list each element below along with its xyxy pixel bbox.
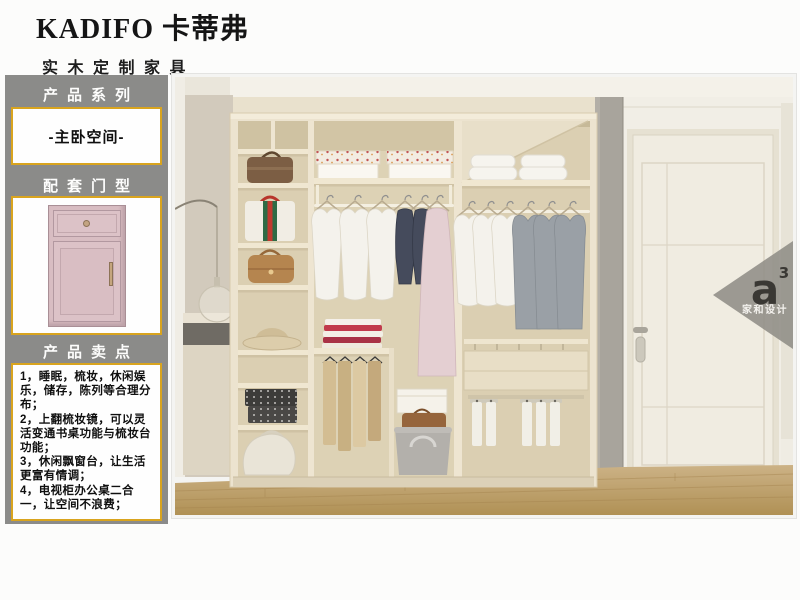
bag-satchel: [248, 251, 294, 284]
door-sample-box: [11, 196, 162, 335]
selling-point-2: 2，上翻梳妆镜，可以灵活变通书桌功能与梳妆台功能；: [20, 413, 155, 456]
section-title-points: 产品卖点: [5, 341, 168, 362]
box-and-basket: [394, 389, 452, 475]
brand-name: KADIFO 卡蒂弗: [36, 7, 249, 47]
watermark-logo-sup: 3: [779, 264, 789, 282]
left-wall: [175, 77, 235, 477]
series-value: -主卧空间-: [49, 126, 125, 147]
bag-brown: [247, 153, 293, 184]
bag-striped: [245, 197, 295, 241]
section-title-series: 产品系列: [5, 84, 168, 105]
room-scene: a 3 家和设计: [175, 77, 793, 515]
selling-points-box: 1，睡眠，梳妆，休闲娱乐，储存，陈列等合理分布； 2，上翻梳妆镜，可以灵活变通书…: [11, 363, 162, 521]
showcase-photo: a 3 家和设计: [172, 74, 796, 518]
selling-point-1: 1，睡眠，梳妆，休闲娱乐，储存，陈列等合理分布；: [20, 370, 155, 413]
wall-pillar: [595, 97, 623, 477]
storage-boxes-dark: [245, 389, 297, 423]
brand-header: KADIFO 卡蒂弗 实木定制家具: [36, 7, 249, 78]
sidebar: 产品系列 -主卧空间- 配套门型 产品卖点 1，睡眠，梳妆，休闲娱乐，储存，陈列…: [5, 75, 168, 524]
page: KADIFO 卡蒂弗 实木定制家具 产品系列 -主卧空间- 配套门型 产品卖点 …: [0, 0, 800, 600]
door-handle: [109, 262, 113, 286]
watermark-caption: 家和设计: [742, 303, 788, 316]
wardrobe: [230, 113, 597, 487]
door-style-illustration: [48, 205, 126, 327]
selling-point-3: 3，休闲飘窗台，让生活更富有情调；: [20, 455, 155, 483]
folded-clothes: [322, 319, 383, 349]
section-title-door: 配套门型: [5, 175, 168, 196]
door-knob: [83, 220, 90, 227]
series-value-box: -主卧空间-: [11, 107, 162, 165]
door-drawer-panel: [53, 210, 121, 237]
door-lower-panel: [53, 241, 121, 322]
selling-point-4: 4，电视柜办公桌二合一，让空间不浪费；: [20, 484, 155, 512]
